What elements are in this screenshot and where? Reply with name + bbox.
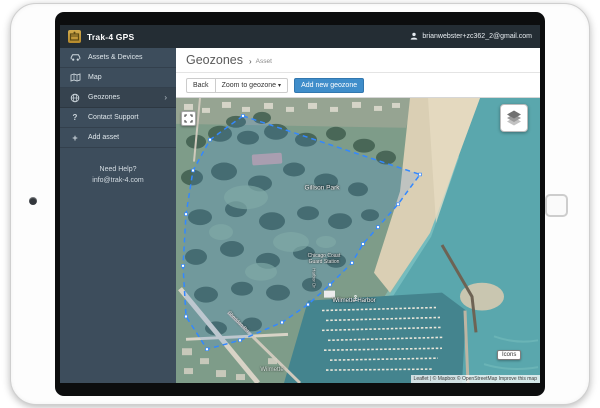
sidebar-item-label: Geozones bbox=[88, 94, 120, 101]
chevron-right-icon: › bbox=[164, 93, 167, 102]
sidebar-item-geozones[interactable]: Geozones › bbox=[60, 88, 176, 108]
top-navbar: Trak-4 GPS brianwebster+zc362_2@gmail.co… bbox=[60, 25, 540, 48]
main-content: Geozones › Asset Back Zoom to geozone▾ A… bbox=[176, 48, 540, 383]
add-new-geozone-button[interactable]: Add new geozone bbox=[294, 78, 364, 93]
sidebar-item-label: Map bbox=[88, 74, 102, 81]
breadcrumb-current: Asset bbox=[256, 58, 272, 65]
layers-icon bbox=[505, 109, 523, 127]
zoom-to-geozone-label: Zoom to geozone bbox=[222, 82, 276, 89]
tablet-home-button bbox=[545, 194, 568, 217]
breadcrumb-separator-icon: › bbox=[249, 57, 252, 66]
sidebar-item-assets-devices[interactable]: Assets & Devices bbox=[60, 48, 176, 68]
globe-icon bbox=[69, 93, 81, 103]
toolbar: Back Zoom to geozone▾ Add new geozone bbox=[176, 73, 540, 97]
user-email: brianwebster+zc362_2@gmail.com bbox=[422, 33, 532, 40]
trak4-logo-icon bbox=[68, 30, 81, 43]
app-window: Trak-4 GPS brianwebster+zc362_2@gmail.co… bbox=[60, 25, 540, 383]
content-header: Geozones › Asset bbox=[176, 48, 540, 73]
brand[interactable]: Trak-4 GPS bbox=[68, 30, 134, 43]
sidebar: Assets & Devices Map bbox=[60, 48, 176, 383]
sidebar-item-map[interactable]: Map bbox=[60, 68, 176, 88]
sidebar-item-label: Contact Support bbox=[88, 114, 139, 121]
sidebar-item-add-asset[interactable]: + Add asset bbox=[60, 128, 176, 148]
anchor-icon bbox=[352, 289, 359, 296]
map-attribution[interactable]: Leaflet | © Mapbox © OpenStreetMap Impro… bbox=[411, 375, 540, 383]
back-button[interactable]: Back bbox=[186, 78, 216, 93]
help-question: Need Help? bbox=[60, 164, 176, 175]
geozone-map[interactable]: Gillson Park Chicago Coast Guard Station… bbox=[176, 97, 540, 383]
vehicle-icon bbox=[69, 53, 81, 62]
tablet-camera bbox=[29, 197, 37, 205]
user-menu[interactable]: brianwebster+zc362_2@gmail.com bbox=[410, 32, 532, 42]
layers-control[interactable] bbox=[500, 104, 528, 132]
page-title: Geozones bbox=[186, 53, 243, 67]
question-icon: ? bbox=[69, 113, 81, 122]
help-email[interactable]: info@trak-4.com bbox=[60, 175, 176, 186]
fullscreen-control[interactable] bbox=[181, 111, 196, 126]
plus-icon: + bbox=[69, 133, 81, 143]
zoom-to-geozone-dropdown[interactable]: Zoom to geozone▾ bbox=[215, 78, 289, 93]
user-icon bbox=[410, 32, 418, 42]
map-icon bbox=[69, 73, 81, 82]
sidebar-help: Need Help? info@trak-4.com bbox=[60, 164, 176, 186]
brand-label: Trak-4 GPS bbox=[87, 32, 134, 42]
sidebar-item-label: Add asset bbox=[88, 134, 119, 141]
sidebar-item-contact-support[interactable]: ? Contact Support bbox=[60, 108, 176, 128]
caret-down-icon: ▾ bbox=[278, 83, 281, 89]
satellite-tiles bbox=[176, 98, 540, 383]
fullscreen-icon bbox=[184, 114, 193, 123]
sidebar-item-label: Assets & Devices bbox=[88, 54, 142, 61]
icons-toggle-button[interactable]: Icons bbox=[497, 350, 521, 360]
